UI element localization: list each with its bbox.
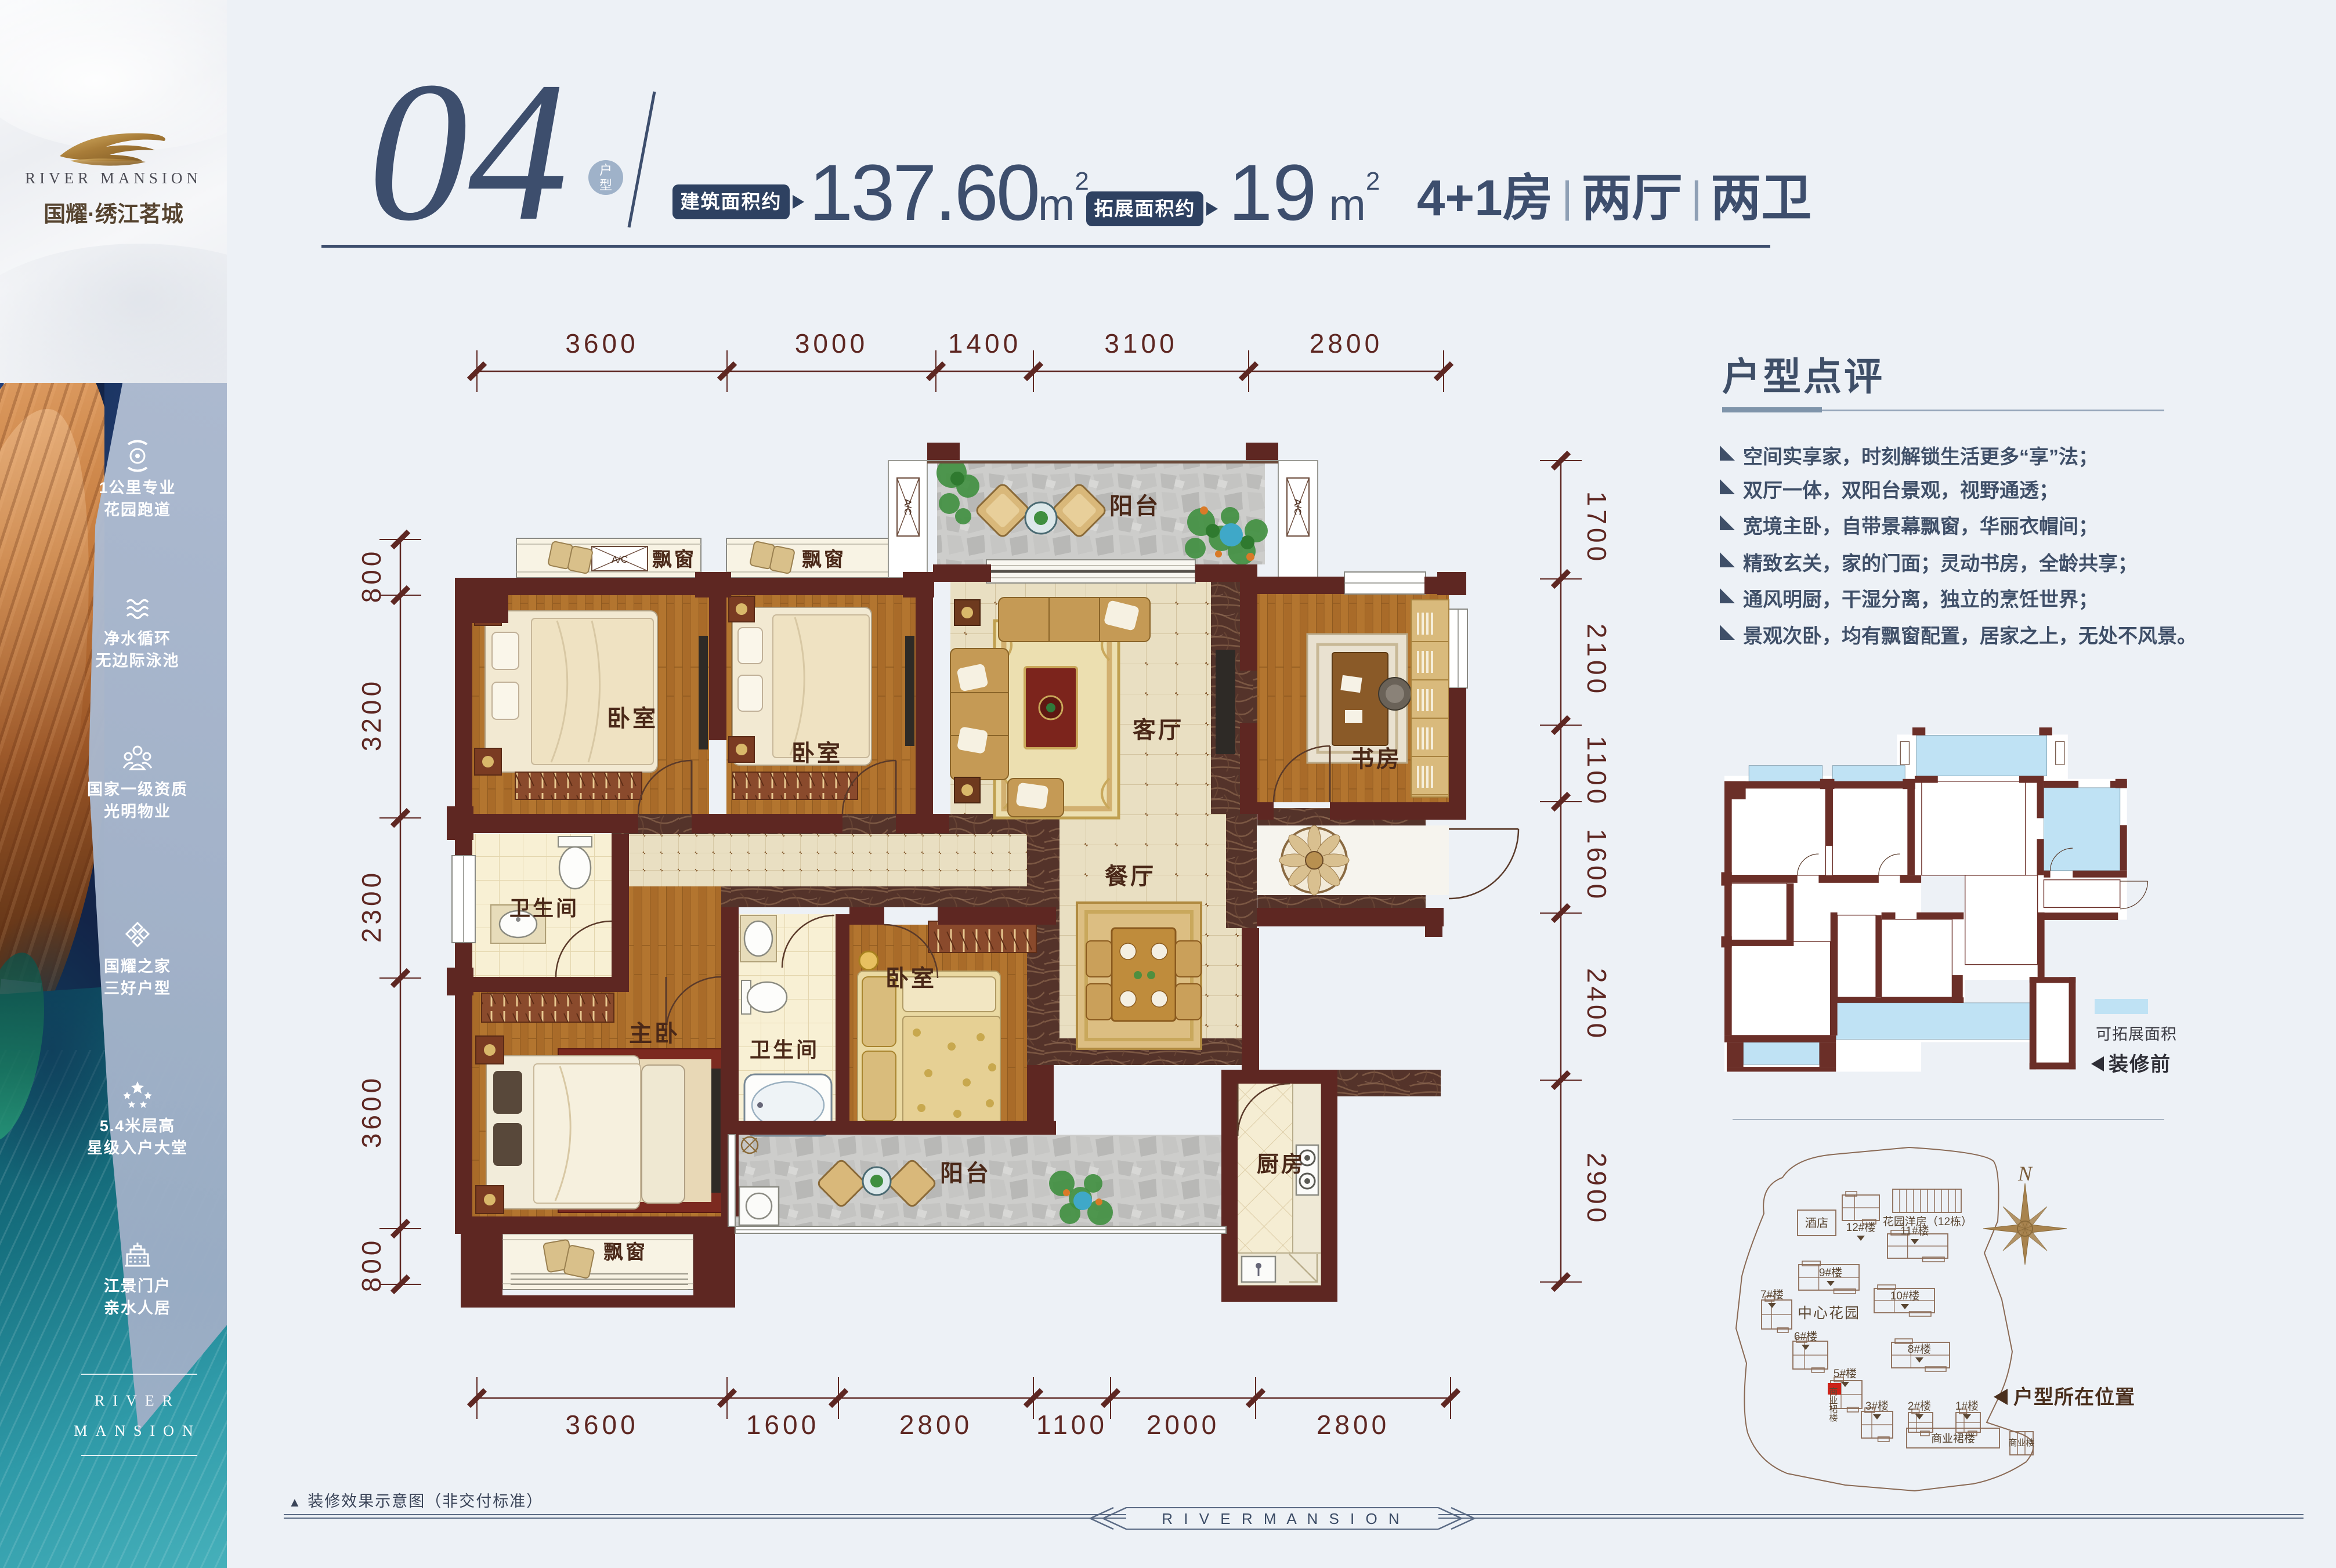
svg-text:书房: 书房 (1351, 747, 1402, 772)
svg-text:7#楼: 7#楼 (1760, 1288, 1784, 1301)
svg-text:飘窗: 飘窗 (652, 549, 696, 571)
svg-text:1#楼: 1#楼 (1955, 1400, 1979, 1413)
svg-text:2300: 2300 (356, 870, 386, 943)
svg-text:2100: 2100 (1582, 624, 1612, 697)
svg-text:3#楼: 3#楼 (1865, 1400, 1889, 1413)
svg-text:1600: 1600 (1582, 829, 1612, 902)
svg-text:2400: 2400 (1582, 968, 1612, 1041)
svg-text:5#楼: 5#楼 (1834, 1367, 1857, 1380)
svg-text:2800: 2800 (1310, 328, 1383, 358)
svg-text:厨房: 厨房 (1257, 1153, 1306, 1177)
svg-text:3600: 3600 (565, 1410, 638, 1440)
svg-text:A/C: A/C (902, 499, 913, 515)
svg-text:餐厅: 餐厅 (1105, 864, 1156, 889)
svg-text:12#楼: 12#楼 (1846, 1221, 1876, 1234)
svg-text:3600: 3600 (356, 1075, 386, 1148)
svg-text:3000: 3000 (795, 328, 868, 358)
svg-text:A/C: A/C (1292, 499, 1303, 515)
svg-text:A/C: A/C (612, 554, 628, 565)
svg-text:8#楼: 8#楼 (1908, 1343, 1931, 1356)
svg-text:飘窗: 飘窗 (603, 1241, 648, 1263)
svg-text:1100: 1100 (1036, 1410, 1108, 1440)
svg-text:装修前: 装修前 (2109, 1053, 2171, 1075)
svg-text:2900: 2900 (1582, 1153, 1612, 1226)
svg-text:9#楼: 9#楼 (1819, 1266, 1842, 1279)
svg-text:酒店: 酒店 (1805, 1216, 1828, 1230)
svg-text:客厅: 客厅 (1133, 718, 1184, 743)
svg-text:1600: 1600 (746, 1410, 819, 1440)
svg-text:3100: 3100 (1104, 328, 1177, 358)
svg-text:户型所在位置: 户型所在位置 (2013, 1386, 2135, 1408)
svg-text:800: 800 (356, 1237, 386, 1292)
svg-text:主卧: 主卧 (629, 1021, 680, 1046)
svg-text:2#楼: 2#楼 (1908, 1400, 1931, 1413)
svg-text:R I V E R M A N S I O N: R I V E R M A N S I O N (1162, 1510, 1402, 1527)
svg-text:2800: 2800 (899, 1410, 972, 1440)
svg-text:商业裙楼: 商业裙楼 (1931, 1432, 1975, 1445)
svg-text:3600: 3600 (565, 328, 638, 358)
svg-text:10#楼: 10#楼 (1890, 1290, 1920, 1302)
svg-text:卧室: 卧室 (885, 966, 936, 991)
svg-text:卧室: 卧室 (791, 741, 842, 766)
svg-text:飘窗: 飘窗 (802, 549, 846, 571)
svg-text:阳台: 阳台 (1109, 494, 1160, 519)
svg-text:N: N (2017, 1162, 2033, 1185)
svg-text:6#楼: 6#楼 (1794, 1330, 1817, 1343)
svg-text:2800: 2800 (1317, 1410, 1390, 1440)
svg-text:阳台: 阳台 (940, 1161, 991, 1186)
svg-text:11#楼: 11#楼 (1900, 1225, 1929, 1237)
svg-text:卧室: 卧室 (607, 706, 658, 732)
svg-text:3200: 3200 (356, 678, 386, 751)
svg-text:1700: 1700 (1582, 491, 1612, 564)
svg-text:800: 800 (356, 548, 386, 603)
svg-text:卫生间: 卫生间 (750, 1038, 819, 1062)
svg-text:2000: 2000 (1147, 1410, 1220, 1440)
svg-text:1400: 1400 (948, 328, 1021, 358)
svg-text:可拓展面积: 可拓展面积 (2096, 1026, 2177, 1043)
svg-text:中心花园: 中心花园 (1798, 1305, 1860, 1321)
svg-text:卫生间: 卫生间 (509, 896, 579, 920)
svg-text:1100: 1100 (1582, 736, 1612, 807)
svg-text:商业裙楼: 商业裙楼 (1829, 1387, 1838, 1423)
svg-text:商业楼: 商业楼 (2008, 1438, 2034, 1448)
